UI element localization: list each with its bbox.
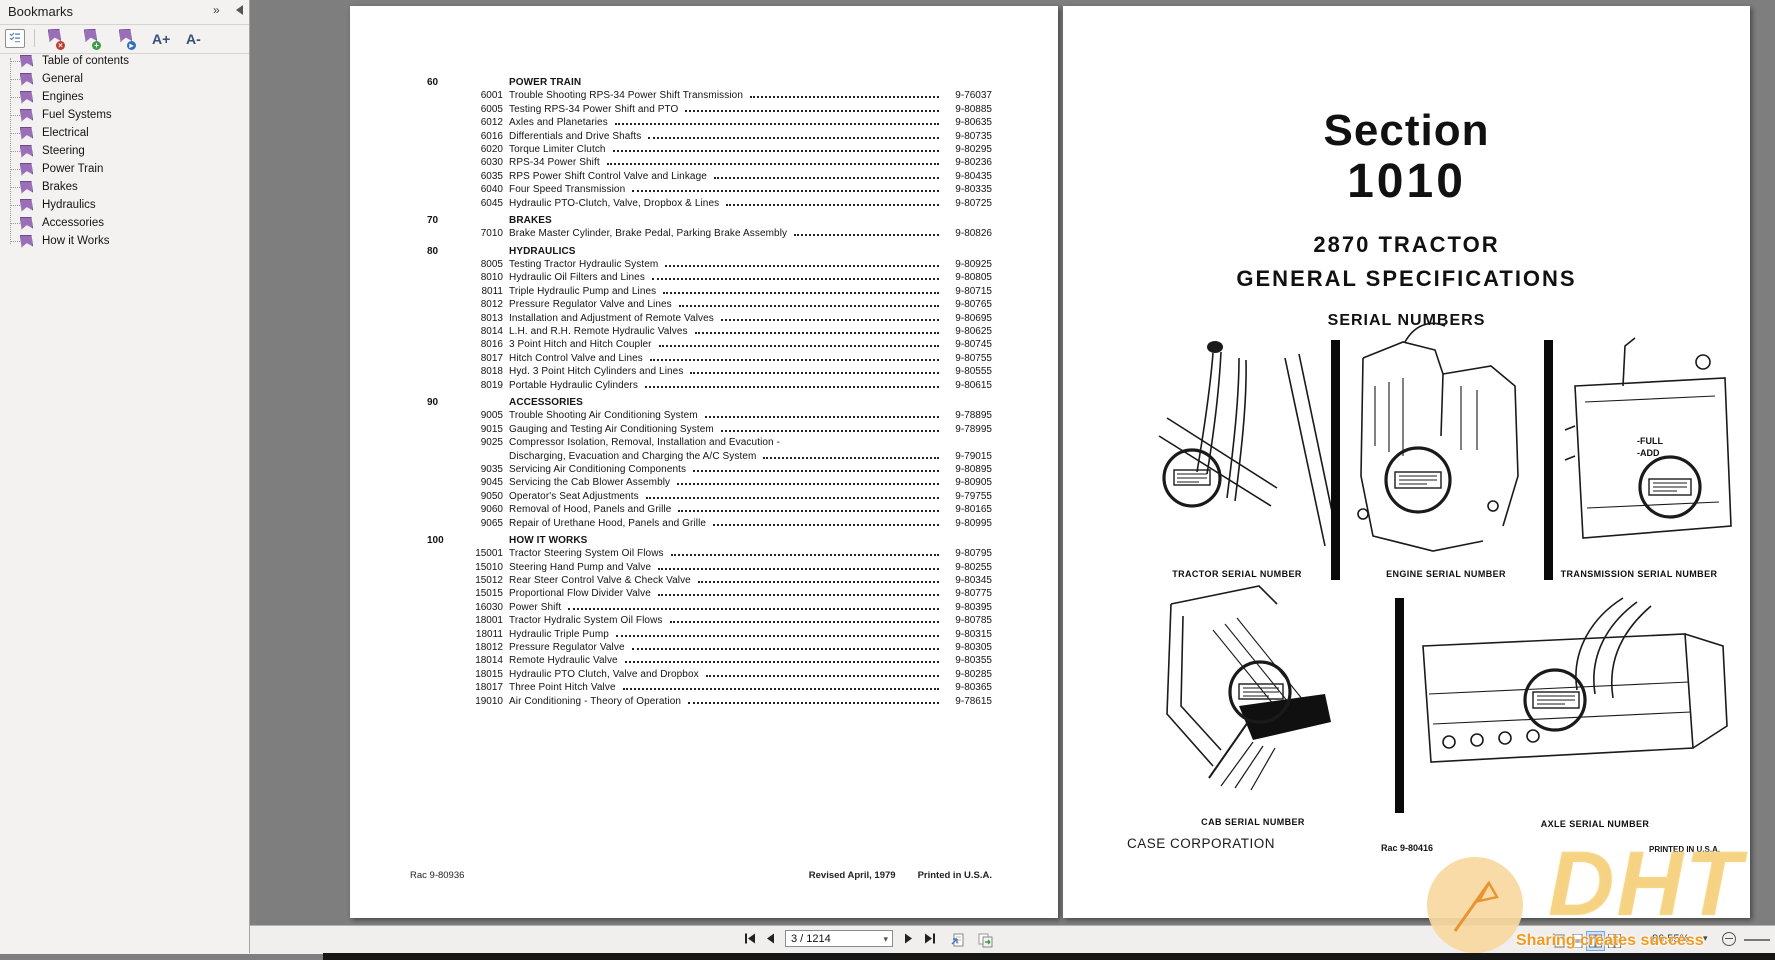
toc-section-title: BRAKES <box>509 214 552 227</box>
toc-entry-id: 9050 <box>467 490 503 503</box>
toc-entry: 15010Steering Hand Pump and Valve9-80255 <box>427 561 992 574</box>
toc-entry-page: 9-80795 <box>944 547 992 560</box>
toc-entry: 6005Testing RPS-34 Power Shift and PTO9-… <box>427 103 992 116</box>
toc-entry: 9025Compressor Isolation, Removal, Insta… <box>427 436 992 449</box>
toc-entry-id: 19010 <box>467 695 503 708</box>
dot-leader <box>698 581 939 583</box>
toolbar-separator <box>34 29 35 47</box>
toc-entry-title: Hyd. 3 Point Hitch Cylinders and Lines <box>509 365 683 378</box>
dot-leader <box>659 345 939 347</box>
toc-entry-page: 9-80765 <box>944 298 992 311</box>
previous-page-button[interactable] <box>765 932 781 947</box>
toc-entry: 15015Proportional Flow Divider Valve9-80… <box>427 587 992 600</box>
toc-entry-title: 3 Point Hitch and Hitch Coupler <box>509 338 652 351</box>
previous-view-icon[interactable] <box>950 932 966 947</box>
bookmark-item-label: Hydraulics <box>42 199 96 211</box>
toc-entry: 6001Trouble Shooting RPS-34 Power Shift … <box>427 89 992 102</box>
toc-entry-id: 6045 <box>467 197 503 210</box>
toc-entry-title: Compressor Isolation, Removal, Installat… <box>509 436 780 449</box>
page-number-value: 3 / 1214 <box>791 933 831 945</box>
bookmarks-toolbar: × + ▸ A+ A- <box>0 25 249 54</box>
dot-leader <box>663 292 939 294</box>
toc-entry-page: 9-80305 <box>944 641 992 654</box>
toc-entry-id: 8011 <box>467 285 503 298</box>
bookmark-flag-icon <box>20 55 33 68</box>
bookmark-item-label: Fuel Systems <box>42 109 112 121</box>
toc-entry-page: 9-80775 <box>944 587 992 600</box>
goto-badge-icon: ▸ <box>127 41 136 50</box>
toc-entry-page: 9-80695 <box>944 312 992 325</box>
layout-single-page-button[interactable] <box>1550 931 1569 951</box>
toc-entry-title: Differentials and Drive Shafts <box>509 130 641 143</box>
layout-facing-continuous-button[interactable] <box>1605 931 1624 951</box>
dot-leader <box>705 416 939 418</box>
dot-leader <box>763 457 939 459</box>
increase-text-size-button[interactable]: A+ <box>152 31 170 47</box>
bookmark-item-table-of-contents[interactable]: Table of contents <box>0 52 249 70</box>
bookmark-item-label: Accessories <box>42 217 104 229</box>
toc-entry-page: 9-76037 <box>944 89 992 102</box>
toc-entry-page: 9-80895 <box>944 463 992 476</box>
toc-entry: 18012Pressure Regulator Valve9-80305 <box>427 641 992 654</box>
bookmark-item-label: Power Train <box>42 163 103 175</box>
table-of-contents: 60POWER TRAIN6001Trouble Shooting RPS-34… <box>427 72 992 708</box>
toc-entry-page: 9-80785 <box>944 614 992 627</box>
toc-section-number: 100 <box>427 534 467 547</box>
toc-entry-id: 7010 <box>467 227 503 240</box>
dot-leader <box>652 278 939 280</box>
toc-entry-title: Steering Hand Pump and Valve <box>509 561 651 574</box>
toc-entry-title: Proportional Flow Divider Valve <box>509 587 651 600</box>
tree-connector-icon <box>10 223 20 224</box>
toc-entry-page: 9-80435 <box>944 170 992 183</box>
toc-entry: 6016Differentials and Drive Shafts9-8073… <box>427 130 992 143</box>
dot-leader <box>658 594 939 596</box>
toc-entry-id: 8018 <box>467 365 503 378</box>
dot-leader <box>706 675 939 677</box>
toc-entry-id: 9065 <box>467 517 503 530</box>
toc-entry: 9060Removal of Hood, Panels and Grille9-… <box>427 503 992 516</box>
toc-entry: 8019Portable Hydraulic Cylinders9-80615 <box>427 379 992 392</box>
dot-leader <box>623 688 939 690</box>
toc-entry: 8017Hitch Control Valve and Lines9-80755 <box>427 352 992 365</box>
toc-entry-page: 9-79755 <box>944 490 992 503</box>
toc-entry: 16030Power Shift9-80395 <box>427 601 992 614</box>
dot-leader <box>648 137 939 139</box>
toc-entry-page: 9-80555 <box>944 365 992 378</box>
viewer-toolbar: 3 / 1214 ▾ 86.55% ▾ <box>0 925 1775 954</box>
dot-leader <box>568 608 939 610</box>
tree-connector-icon <box>10 241 20 242</box>
toc-entry: 8018Hyd. 3 Point Hitch Cylinders and Lin… <box>427 365 992 378</box>
bookmark-item-accessories[interactable]: Accessories <box>0 214 249 232</box>
next-page-button[interactable] <box>903 932 919 947</box>
toc-entry-page: 9-80826 <box>944 227 992 240</box>
dot-leader <box>685 110 939 112</box>
toc-entry-page: 9-80805 <box>944 271 992 284</box>
toc-entry-id: 6035 <box>467 170 503 183</box>
toc-entry-title: Axles and Planetaries <box>509 116 608 129</box>
dot-leader <box>677 483 939 485</box>
delete-badge-icon: × <box>56 41 65 50</box>
toc-section-number: 70 <box>427 214 467 227</box>
dot-leader <box>713 524 939 526</box>
dot-leader <box>665 265 939 267</box>
toc-section-heading: 90ACCESSORIES <box>427 396 992 409</box>
dot-leader <box>670 621 939 623</box>
toc-entry: 9065Repair of Urethane Hood, Panels and … <box>427 517 992 530</box>
toc-entry-id: 16030 <box>467 601 503 614</box>
toc-entry-title: Power Shift <box>509 601 561 614</box>
dot-leader <box>794 234 939 236</box>
toc-entry: 18015Hydraulic PTO Clutch, Valve and Dro… <box>427 668 992 681</box>
toc-entry-page: 9-80635 <box>944 116 992 129</box>
collapse-panel-icon[interactable] <box>236 5 243 15</box>
toc-section-title: POWER TRAIN <box>509 76 581 89</box>
toc-entry-title: Remote Hydraulic Valve <box>509 654 618 667</box>
toc-entry-title: Testing Tractor Hydraulic System <box>509 258 658 271</box>
decrease-text-size-button[interactable]: A- <box>186 31 201 47</box>
toc-entry-id: 6012 <box>467 116 503 129</box>
bookmarks-panel-header: Bookmarks » <box>0 0 249 25</box>
toc-entry: 9050Operator's Seat Adjustments9-79755 <box>427 490 992 503</box>
dot-leader <box>671 554 939 556</box>
dot-leader <box>625 661 939 663</box>
toc-entry-title: Repair of Urethane Hood, Panels and Gril… <box>509 517 706 530</box>
toc-entry-page: 9-79015 <box>944 450 992 463</box>
toc-entry-title: Air Conditioning - Theory of Operation <box>509 695 681 708</box>
toc-entry-id: 6016 <box>467 130 503 143</box>
dot-leader <box>678 510 939 512</box>
toc-entry: 18014Remote Hydraulic Valve9-80355 <box>427 654 992 667</box>
toc-entry-continuation: Discharging, Evacuation and Charging the… <box>427 450 992 463</box>
tree-connector-icon <box>10 97 20 98</box>
toc-entry-title: Gauging and Testing Air Conditioning Sys… <box>509 423 714 436</box>
toc-entry: 6035RPS Power Shift Control Valve and Li… <box>427 170 992 183</box>
add-badge-icon: + <box>92 41 101 50</box>
toc-section-heading: 80HYDRAULICS <box>427 245 992 258</box>
toc-section-number: 60 <box>427 76 467 89</box>
next-view-icon[interactable] <box>977 932 993 947</box>
options-icon[interactable] <box>5 29 25 48</box>
section-doc-code: Rac 9-80416 <box>1381 843 1433 853</box>
toc-section-heading: 60POWER TRAIN <box>427 76 992 89</box>
section-printed-text: PRINTED IN U.S.A. <box>1649 845 1720 854</box>
toc-entry-id: 18017 <box>467 681 503 694</box>
toc-entry: 18017Three Point Hitch Valve9-80365 <box>427 681 992 694</box>
toc-entry: 6012Axles and Planetaries9-80635 <box>427 116 992 129</box>
expand-panel-icon[interactable]: » <box>213 3 220 17</box>
toc-entry-id: 6040 <box>467 183 503 196</box>
toc-section-title: HYDRAULICS <box>509 245 576 258</box>
dot-leader <box>679 305 939 307</box>
toc-entry-title: Three Point Hitch Valve <box>509 681 616 694</box>
serial-number-illustrations: -FULL -ADD <box>1063 6 1750 918</box>
bookmark-flag-icon <box>20 181 33 194</box>
tree-connector-icon <box>10 187 20 188</box>
toc-entry: 8014L.H. and R.H. Remote Hydraulic Valve… <box>427 325 992 338</box>
toc-entry-id: 9015 <box>467 423 503 436</box>
toc-entry: 8012Pressure Regulator Valve and Lines9-… <box>427 298 992 311</box>
bookmark-item-engines[interactable]: Engines <box>0 88 249 106</box>
toc-entry: 80163 Point Hitch and Hitch Coupler9-807… <box>427 338 992 351</box>
toc-section-number: 90 <box>427 396 467 409</box>
toc-entry-page: 9-80315 <box>944 628 992 641</box>
document-page-toc: 60POWER TRAIN6001Trouble Shooting RPS-34… <box>350 6 1058 918</box>
bookmark-item-hydraulics[interactable]: Hydraulics <box>0 196 249 214</box>
bookmark-flag-icon <box>20 199 33 212</box>
toc-entry-page: 9-80395 <box>944 601 992 614</box>
dot-leader <box>658 568 939 570</box>
toc-entry-title: Hydraulic PTO-Clutch, Valve, Dropbox & L… <box>509 197 719 210</box>
tree-connector-icon <box>10 151 20 152</box>
toc-entry-page: 9-80615 <box>944 379 992 392</box>
toc-entry-id: 9025 <box>467 436 503 449</box>
toc-entry: 18011Hydraulic Triple Pump9-80315 <box>427 628 992 641</box>
toc-entry-id: 15010 <box>467 561 503 574</box>
engine-serial-label: ENGINE SERIAL NUMBER <box>1386 569 1506 579</box>
toc-entry-page: 9-80905 <box>944 476 992 489</box>
toc-entry-page: 9-80355 <box>944 654 992 667</box>
goto-bookmark-icon[interactable]: ▸ <box>119 29 132 47</box>
bookmark-item-label: General <box>42 73 83 85</box>
toc-section-title: ACCESSORIES <box>509 396 583 409</box>
toc-entry-page: 9-80335 <box>944 183 992 196</box>
toc-entry-title: Hydraulic PTO Clutch, Valve and Dropbox <box>509 668 699 681</box>
bookmark-item-label: Electrical <box>42 127 89 139</box>
toc-entry-title: Operator's Seat Adjustments <box>509 490 639 503</box>
toc-doc-code: Rac 9-80936 <box>410 870 464 881</box>
bookmark-flag-icon <box>20 91 33 104</box>
toc-entry-title: Triple Hydraulic Pump and Lines <box>509 285 656 298</box>
toc-entry-page: 9-78895 <box>944 409 992 422</box>
toc-entry-id: 18015 <box>467 668 503 681</box>
axle-serial-label: AXLE SERIAL NUMBER <box>1541 819 1650 829</box>
tree-connector-icon <box>10 169 20 170</box>
toc-entry-title: Tractor Hydralic System Oil Flows <box>509 614 663 627</box>
bookmark-item-how-it-works[interactable]: How it Works <box>0 232 249 250</box>
toc-entry-title: Trouble Shooting Air Conditioning System <box>509 409 698 422</box>
toc-entry: 9035Servicing Air Conditioning Component… <box>427 463 992 476</box>
toc-entry-title: Pressure Regulator Valve <box>509 641 625 654</box>
toc-entry-page: 9-80285 <box>944 668 992 681</box>
zoom-slider[interactable] <box>1744 939 1770 941</box>
options-list-icon <box>9 32 21 43</box>
dot-leader <box>688 702 939 704</box>
tree-connector-icon <box>10 115 20 116</box>
toc-entry-id: 9045 <box>467 476 503 489</box>
document-page-section: Section 1010 2870 TRACTOR GENERAL SPECIF… <box>1063 6 1750 918</box>
bookmark-flag-icon <box>20 235 33 248</box>
dot-leader <box>650 359 939 361</box>
toc-section-heading: 70BRAKES <box>427 214 992 227</box>
dot-leader <box>613 150 939 152</box>
bookmark-item-label: Table of contents <box>42 55 129 67</box>
toc-entry-page: 9-80885 <box>944 103 992 116</box>
bookmark-flag-icon <box>20 73 33 86</box>
toc-entry: 9005Trouble Shooting Air Conditioning Sy… <box>427 409 992 422</box>
toc-entry-id: 18012 <box>467 641 503 654</box>
toc-entry-title: Trouble Shooting RPS-34 Power Shift Tran… <box>509 89 743 102</box>
toc-entry: 6040Four Speed Transmission9-80335 <box>427 183 992 196</box>
toc-entry-page: 9-80625 <box>944 325 992 338</box>
bookmarks-panel-title: Bookmarks <box>8 4 73 19</box>
bookmarks-panel: Bookmarks » × + ▸ A+ A- <box>0 0 250 953</box>
toc-entry-title: Testing RPS-34 Power Shift and PTO <box>509 103 678 116</box>
transmission-serial-label: TRANSMISSION SERIAL NUMBER <box>1561 569 1718 579</box>
dot-leader <box>693 470 939 472</box>
toc-entry-title-line2: Discharging, Evacuation and Charging the… <box>509 450 756 463</box>
toc-entry-id: 9035 <box>467 463 503 476</box>
toc-entry: 6030RPS-34 Power Shift9-80236 <box>427 156 992 169</box>
toc-entry-title: Pressure Regulator Valve and Lines <box>509 298 672 311</box>
new-bookmark-icon[interactable]: + <box>84 29 97 47</box>
dot-leader <box>695 332 939 334</box>
toc-page-footer: Rac 9-80936 Revised April, 1979 Printed … <box>410 870 992 881</box>
bookmark-item-steering[interactable]: Steering <box>0 142 249 160</box>
toc-section-title: HOW IT WORKS <box>509 534 587 547</box>
bookmark-flag-icon <box>20 163 33 176</box>
toc-entry-page: 9-80745 <box>944 338 992 351</box>
tractor-serial-label: TRACTOR SERIAL NUMBER <box>1172 569 1302 579</box>
toc-entry-id: 18011 <box>467 628 503 641</box>
bookmark-flag-icon <box>20 127 33 140</box>
bookmark-item-brakes[interactable]: Brakes <box>0 178 249 196</box>
page-dropdown-caret-icon[interactable]: ▾ <box>883 931 888 948</box>
bookmark-item-label: Brakes <box>42 181 78 193</box>
bottom-black-strip <box>323 953 1775 960</box>
toc-entry-title: Hitch Control Valve and Lines <box>509 352 643 365</box>
toc-entry-page: 9-80735 <box>944 130 992 143</box>
bookmark-item-general[interactable]: General <box>0 70 249 88</box>
bookmark-item-label: Engines <box>42 91 84 103</box>
tree-connector-icon <box>10 61 20 62</box>
layout-continuous-button[interactable] <box>1568 931 1587 951</box>
toc-entry-title: Servicing the Cab Blower Assembly <box>509 476 670 489</box>
toc-entry-id: 8013 <box>467 312 503 325</box>
toc-entry: 15012Rear Steer Control Valve & Check Va… <box>427 574 992 587</box>
bookmark-item-power-train[interactable]: Power Train <box>0 160 249 178</box>
toc-entry-page: 9-78995 <box>944 423 992 436</box>
toc-entry-title: L.H. and R.H. Remote Hydraulic Valves <box>509 325 688 338</box>
first-page-button[interactable] <box>743 932 759 947</box>
toc-entry: 15001Tractor Steering System Oil Flows9-… <box>427 547 992 560</box>
bookmark-item-electrical[interactable]: Electrical <box>0 124 249 142</box>
toc-entry-title: RPS Power Shift Control Valve and Linkag… <box>509 170 707 183</box>
toc-entry-id: 8005 <box>467 258 503 271</box>
toc-entry-title: Removal of Hood, Panels and Grille <box>509 503 671 516</box>
zoom-out-icon[interactable] <box>1722 932 1736 946</box>
toc-entry-page: 9-78615 <box>944 695 992 708</box>
bookmark-item-label: How it Works <box>42 235 110 247</box>
dot-leader <box>615 123 939 125</box>
toc-entry-id: 8010 <box>467 271 503 284</box>
toc-entry-id: 6001 <box>467 89 503 102</box>
dot-leader <box>721 430 939 432</box>
toc-entry-page: 9-80995 <box>944 517 992 530</box>
bookmark-flag-icon <box>20 217 33 230</box>
toc-entry-page: 9-80715 <box>944 285 992 298</box>
toc-entry-id: 8014 <box>467 325 503 338</box>
toc-entry-page: 9-80755 <box>944 352 992 365</box>
toc-entry: 18001Tractor Hydralic System Oil Flows9-… <box>427 614 992 627</box>
toc-entry-id: 8012 <box>467 298 503 311</box>
dot-leader <box>632 648 939 650</box>
toc-entry-title: Tractor Steering System Oil Flows <box>509 547 664 560</box>
toc-entry-id: 8019 <box>467 379 503 392</box>
dot-leader <box>750 96 939 98</box>
toc-entry-id: 8017 <box>467 352 503 365</box>
page-number-input[interactable]: 3 / 1214 ▾ <box>785 930 893 947</box>
dot-leader <box>646 497 939 499</box>
toc-entry: 19010Air Conditioning - Theory of Operat… <box>427 695 992 708</box>
delete-bookmark-icon[interactable]: × <box>48 29 61 47</box>
dot-leader <box>690 372 939 374</box>
dot-leader <box>714 177 939 179</box>
toc-entry-title: Four Speed Transmission <box>509 183 625 196</box>
toc-entry-id: 9005 <box>467 409 503 422</box>
dot-leader <box>616 635 939 637</box>
toc-entry: 9015Gauging and Testing Air Conditioning… <box>427 423 992 436</box>
zoom-dropdown-caret-icon[interactable]: ▾ <box>1703 933 1708 944</box>
toc-entry-page: 9-80236 <box>944 156 992 169</box>
cab-serial-label: CAB SERIAL NUMBER <box>1201 817 1305 827</box>
toc-entry-title: Hydraulic Oil Filters and Lines <box>509 271 645 284</box>
toc-entry-page: 9-80165 <box>944 503 992 516</box>
company-name: CASE CORPORATION <box>1127 836 1275 851</box>
toc-entry-title: RPS-34 Power Shift <box>509 156 600 169</box>
toc-section-heading: 100HOW IT WORKS <box>427 534 992 547</box>
toc-entry-page: 9-80365 <box>944 681 992 694</box>
toc-entry: 8010Hydraulic Oil Filters and Lines9-808… <box>427 271 992 284</box>
toc-printed-text: Printed in U.S.A. <box>918 870 992 881</box>
toc-entry-title: Torque Limiter Clutch <box>509 143 606 156</box>
zoom-value[interactable]: 86.55% <box>1652 933 1689 945</box>
toc-entry: 6020Torque Limiter Clutch9-80295 <box>427 143 992 156</box>
bookmark-item-fuel-systems[interactable]: Fuel Systems <box>0 106 249 124</box>
tree-connector-icon <box>10 133 20 134</box>
toc-entry: 8011Triple Hydraulic Pump and Lines9-807… <box>427 285 992 298</box>
toc-entry-title: Portable Hydraulic Cylinders <box>509 379 638 392</box>
toc-entry-id: 15012 <box>467 574 503 587</box>
toc-entry: 8005Testing Tractor Hydraulic System9-80… <box>427 258 992 271</box>
toc-entry-id: 9060 <box>467 503 503 516</box>
toc-entry-page: 9-80925 <box>944 258 992 271</box>
toc-section-number: 80 <box>427 245 467 258</box>
dot-leader <box>645 386 939 388</box>
toc-entry: 7010Brake Master Cylinder, Brake Pedal, … <box>427 227 992 240</box>
toc-entry-title: Rear Steer Control Valve & Check Valve <box>509 574 691 587</box>
toc-entry-id: 15015 <box>467 587 503 600</box>
dipstick-full-label: -FULL <box>1637 436 1663 446</box>
toc-entry-id: 6030 <box>467 156 503 169</box>
tree-connector-icon <box>10 205 20 206</box>
toc-entry: 6045Hydraulic PTO-Clutch, Valve, Dropbox… <box>427 197 992 210</box>
toc-entry-title: Servicing Air Conditioning Components <box>509 463 686 476</box>
toc-entry-page: 9-80295 <box>944 143 992 156</box>
layout-facing-button[interactable] <box>1586 931 1605 951</box>
bookmarks-list: Table of contentsGeneralEnginesFuel Syst… <box>0 52 249 250</box>
dot-leader <box>632 190 939 192</box>
toc-entry-id: 18001 <box>467 614 503 627</box>
last-page-button[interactable] <box>923 932 939 947</box>
toc-entry-id: 6020 <box>467 143 503 156</box>
toc-entry-page: 9-80345 <box>944 574 992 587</box>
toc-entry-id: 6005 <box>467 103 503 116</box>
toc-entry-title: Brake Master Cylinder, Brake Pedal, Park… <box>509 227 787 240</box>
tree-connector-icon <box>10 79 20 80</box>
dot-leader <box>607 163 939 165</box>
